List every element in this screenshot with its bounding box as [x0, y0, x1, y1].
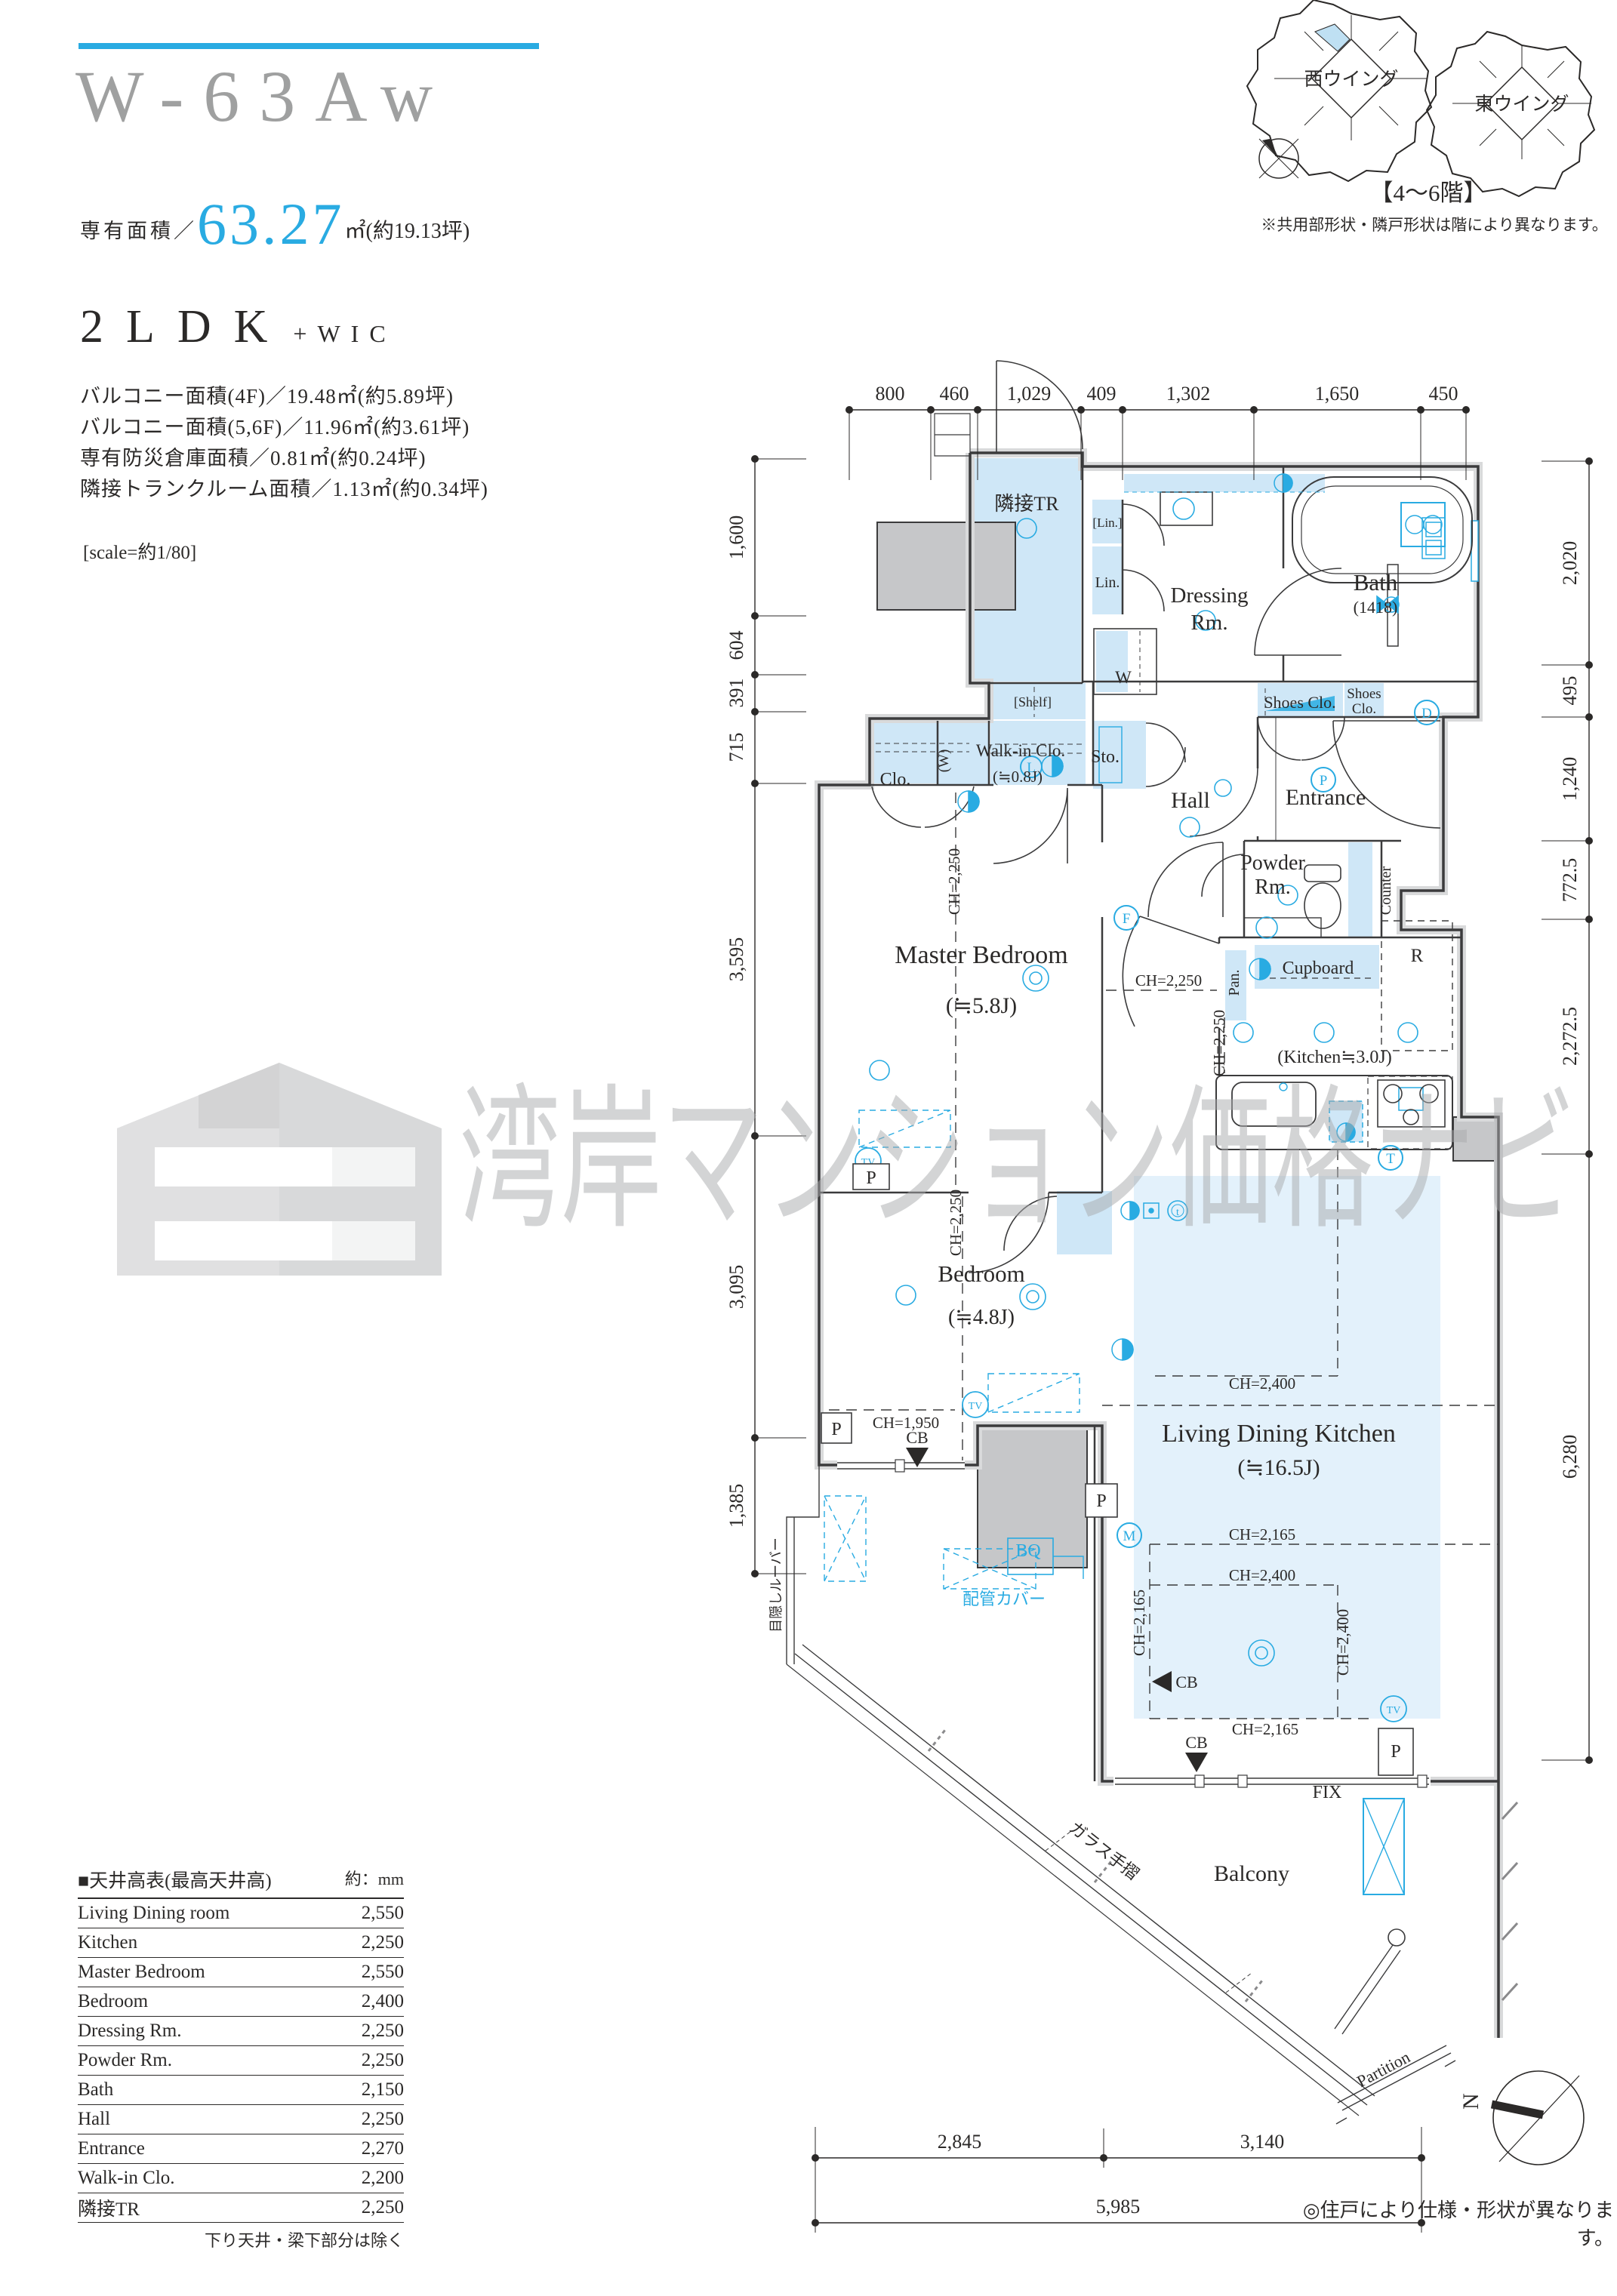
table-row: Kitchen2,250	[78, 1928, 404, 1958]
label-pan: Pan.	[1226, 970, 1243, 996]
label-washer: W	[1115, 668, 1132, 687]
label-wic: Walk-in Clo.	[976, 741, 1065, 760]
svg-text:CH=2,250: CH=2,250	[1135, 971, 1202, 989]
ceiling-height-table: ■天井高表(最高天井高) 約：mm Living Dining room2,55…	[78, 1866, 404, 2251]
label-partition: Partition	[1354, 2048, 1413, 2091]
vent-icon	[1249, 959, 1270, 980]
table-row: Entrance2,270	[78, 2134, 404, 2164]
svg-text:6,280: 6,280	[1559, 1435, 1581, 1479]
ceiling-table-title: ■天井高表(最高天井高)	[78, 1866, 272, 1893]
svg-text:P: P	[1391, 1742, 1400, 1762]
svg-text:1,029: 1,029	[1007, 383, 1052, 405]
svg-text:1,302: 1,302	[1166, 383, 1211, 405]
label-pipe-cover: 配管カバー	[962, 1590, 1046, 1608]
east-wing-label: 東ウイング	[1474, 94, 1569, 115]
svg-text:450: 450	[1429, 383, 1458, 405]
north-compass: N	[1458, 2071, 1584, 2165]
bath-window-icon	[1422, 518, 1445, 559]
label-lin: Lin.	[1095, 574, 1120, 591]
svg-text:M: M	[1123, 1528, 1136, 1544]
vent-icon	[1112, 1339, 1133, 1360]
ceiling-table-footnote: 下り天井・梁下部分は除く	[78, 2227, 404, 2251]
svg-text:2,845: 2,845	[938, 2131, 982, 2153]
svg-text:715: 715	[725, 733, 747, 762]
watermark-logo	[117, 1063, 442, 1276]
svg-text:CH=2,165: CH=2,165	[1232, 1720, 1298, 1738]
marker-f: F	[1114, 906, 1138, 930]
ceiling-table-unit: 約：mm	[345, 1866, 404, 1893]
watermark-text: 湾岸マンション価格ナビ	[459, 1076, 1576, 1248]
label-hall: Hall	[1171, 788, 1210, 813]
svg-text:CH=2,400: CH=2,400	[1229, 1374, 1295, 1393]
label-dressing-2: Rm.	[1190, 611, 1227, 635]
label-powder-2: Rm.	[1255, 876, 1290, 899]
marker-tv-2: TV	[962, 1392, 988, 1417]
label-bedroom: Bedroom	[938, 1260, 1024, 1287]
label-master-bedroom: Master Bedroom	[895, 941, 1067, 969]
label-ldk: Living Dining Kitchen	[1162, 1420, 1396, 1448]
svg-text:D: D	[1421, 706, 1432, 722]
svg-text:391: 391	[725, 679, 747, 708]
label-bedroom-size: (≒4.8J)	[948, 1306, 1015, 1329]
label-sto: Sto.	[1091, 747, 1120, 767]
wing-floors-caption: 【4〜6階】	[1370, 180, 1487, 206]
svg-text:772.5: 772.5	[1559, 858, 1581, 903]
svg-text:1,385: 1,385	[725, 1484, 747, 1528]
label-refrigerator: R	[1411, 946, 1424, 966]
floorplan-page: W-63Aw 専有面積／63.27㎡(約19.13坪) 2LDK +WIC バル…	[0, 0, 1617, 2296]
svg-text:5,985: 5,985	[1096, 2196, 1141, 2218]
table-row: Walk-in Clo.2,200	[78, 2164, 404, 2193]
svg-text:3,095: 3,095	[725, 1265, 747, 1310]
label-cupboard: Cupboard	[1283, 959, 1354, 978]
table-row: Powder Rm.2,250	[78, 2046, 404, 2076]
svg-text:3,595: 3,595	[725, 937, 747, 982]
watermark: 湾岸マンション価格ナビ	[117, 1063, 1576, 1276]
label-balcony: Balcony	[1214, 1861, 1289, 1886]
svg-text:409: 409	[1087, 383, 1116, 405]
svg-text:TV: TV	[969, 1401, 983, 1412]
label-w-paren: (W)	[936, 749, 952, 773]
svg-text:CB: CB	[1175, 1673, 1197, 1691]
label-ldk-size: (≒16.5J)	[1237, 1455, 1320, 1480]
svg-text:2,272.5: 2,272.5	[1559, 1007, 1581, 1066]
label-glass-rail: ガラス手摺	[1066, 1818, 1143, 1884]
label-bath: Bath	[1354, 569, 1398, 596]
table-row: Living Dining room2,550	[78, 1899, 404, 1928]
svg-text:CH=2,250: CH=2,250	[1210, 1010, 1228, 1076]
svg-text:CH=2,165: CH=2,165	[1229, 1525, 1295, 1543]
svg-text:F: F	[1123, 911, 1131, 927]
label-lin-upper: [Lin.]	[1092, 516, 1122, 530]
label-shelf: [Shelf]	[1014, 694, 1052, 709]
label-dressing-1: Dressing	[1170, 583, 1248, 608]
svg-text:TV: TV	[1387, 1705, 1401, 1716]
label-fix: FIX	[1313, 1783, 1342, 1802]
svg-text:2,020: 2,020	[1559, 541, 1581, 586]
table-row: Dressing Rm.2,250	[78, 2017, 404, 2046]
footer-note: ◎住戸により仕様・形状が異なります。	[1297, 2195, 1614, 2251]
label-louver: 目隠しルーバー	[768, 1537, 784, 1633]
wing-note: ※共用部形状・隣戸形状は階により異なります。	[1261, 216, 1607, 234]
svg-text:3,140: 3,140	[1240, 2131, 1285, 2153]
ceiling-table-header: ■天井高表(最高天井高) 約：mm	[78, 1866, 404, 1899]
svg-text:CH=2,400: CH=2,400	[1334, 1609, 1352, 1676]
svg-text:1,240: 1,240	[1559, 757, 1581, 802]
label-kitchen: (Kitchen≒3.0J)	[1277, 1048, 1391, 1067]
svg-text:CH=2,250: CH=2,250	[945, 848, 963, 915]
svg-text:800: 800	[876, 383, 905, 405]
table-row: 隣接TR2,250	[78, 2193, 404, 2223]
svg-text:CH=1,950: CH=1,950	[873, 1414, 939, 1432]
svg-text:604: 604	[725, 631, 747, 660]
label-shoes-2b: Clo.	[1352, 701, 1376, 717]
svg-text:1,650: 1,650	[1315, 383, 1360, 405]
svg-text:460: 460	[940, 383, 969, 405]
table-row: Bedroom2,400	[78, 1987, 404, 2017]
svg-text:CH=2,400: CH=2,400	[1229, 1566, 1295, 1584]
table-row: Bath2,150	[78, 2076, 404, 2105]
label-counter: Counter	[1378, 866, 1394, 915]
table-row: Hall2,250	[78, 2105, 404, 2134]
label-powder-1: Powder	[1240, 851, 1305, 875]
label-master-size: (≒5.8J)	[946, 993, 1017, 1018]
label-wic-size: (≒0.8J)	[993, 768, 1043, 786]
svg-text:495: 495	[1559, 676, 1581, 706]
svg-text:CB: CB	[1185, 1733, 1207, 1752]
svg-text:1,600: 1,600	[725, 516, 747, 560]
west-wing-label: 西ウイング	[1304, 69, 1398, 90]
label-shoes-1: Shoes Clo.	[1264, 693, 1335, 712]
compass-north-label: N	[1458, 2093, 1483, 2110]
svg-text:CH=2,165: CH=2,165	[1130, 1590, 1148, 1656]
svg-text:P: P	[1096, 1491, 1106, 1511]
label-entrance: Entrance	[1286, 785, 1366, 810]
vent-icon	[958, 791, 979, 812]
label-clo-master: Clo.	[880, 770, 911, 789]
table-row: Master Bedroom2,550	[78, 1958, 404, 1987]
keyplan-compass	[1259, 139, 1298, 178]
label-shoes-2a: Shoes	[1347, 686, 1381, 702]
label-adjacent-tr: 隣接TR	[994, 493, 1059, 515]
label-bq: BQ	[1015, 1541, 1040, 1561]
marker-d: D	[1415, 700, 1439, 725]
label-bath-size: (1418)	[1354, 598, 1398, 617]
svg-text:P: P	[831, 1420, 841, 1439]
